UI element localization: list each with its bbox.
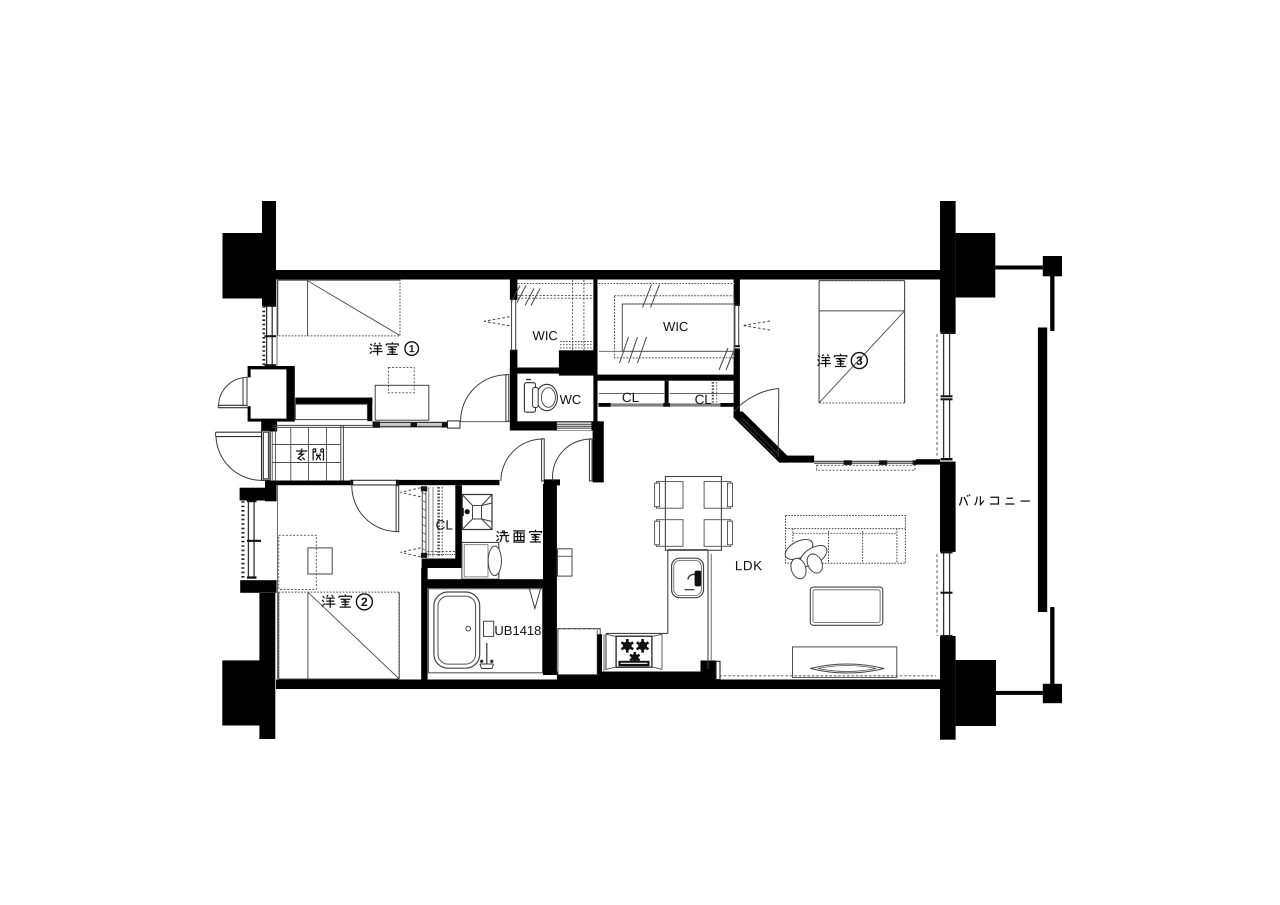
svg-text:WIC: WIC bbox=[533, 328, 558, 343]
svg-text:WIC: WIC bbox=[663, 319, 688, 334]
svg-text:CL: CL bbox=[695, 392, 713, 407]
svg-text:UB1418: UB1418 bbox=[494, 623, 541, 638]
svg-text:3: 3 bbox=[856, 354, 863, 368]
svg-text:WC: WC bbox=[560, 392, 582, 407]
svg-text:1: 1 bbox=[409, 344, 415, 355]
svg-text:CL: CL bbox=[436, 517, 454, 532]
svg-text:CL: CL bbox=[622, 390, 640, 405]
svg-text:LDK: LDK bbox=[735, 558, 763, 573]
svg-text:2: 2 bbox=[361, 595, 368, 609]
